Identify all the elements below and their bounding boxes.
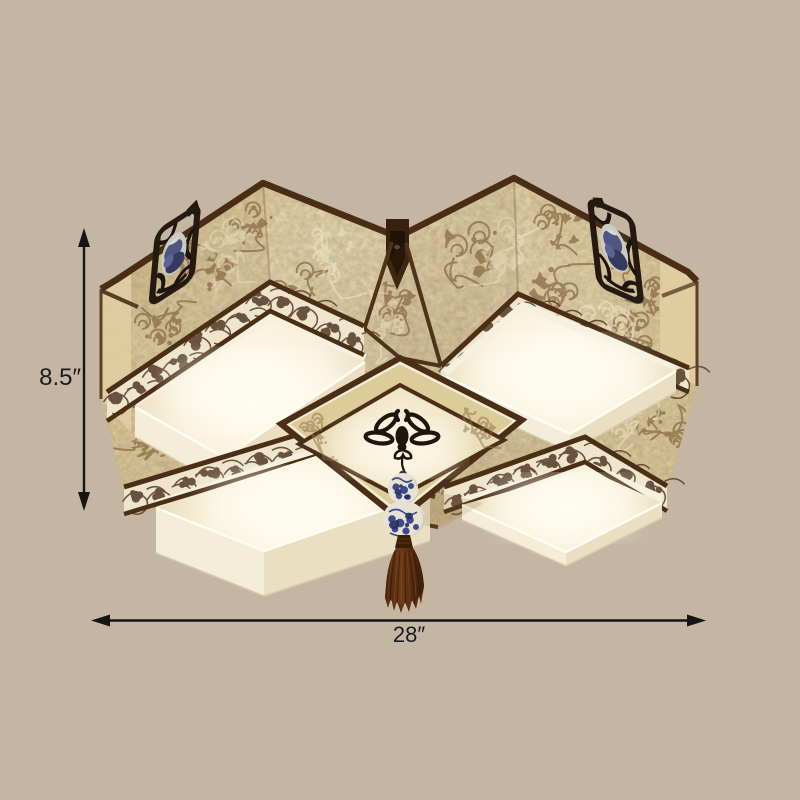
svg-text:8.5″: 8.5″ — [39, 364, 81, 391]
svg-text:28″: 28″ — [393, 622, 425, 647]
